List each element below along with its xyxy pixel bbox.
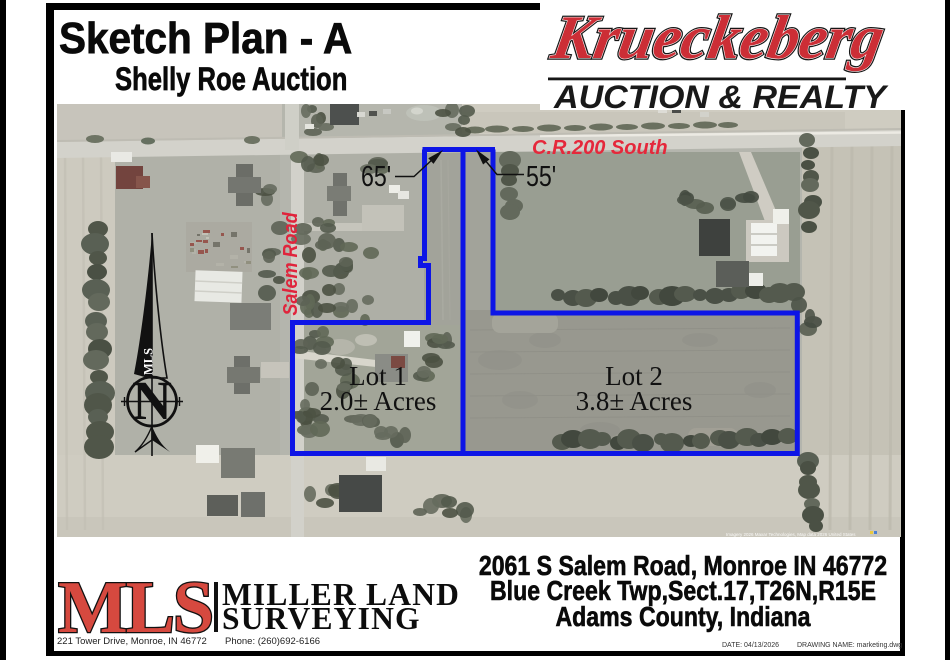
svg-text:N: N xyxy=(132,370,172,431)
svg-text:Krueckeberg: Krueckeberg xyxy=(546,2,889,71)
svg-text:AUCTION & REALTY: AUCTION & REALTY xyxy=(553,79,889,115)
svg-text:MLS: MLS xyxy=(58,575,212,641)
svg-text:Imagery 2026 Maxar Technologie: Imagery 2026 Maxar Technologies, Map dat… xyxy=(726,532,856,537)
